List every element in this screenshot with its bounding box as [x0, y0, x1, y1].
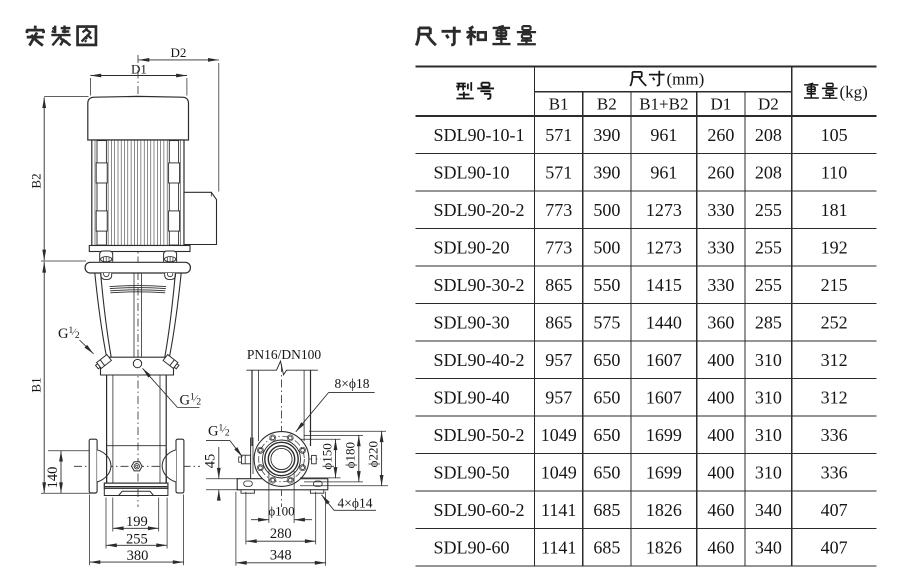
- svg-text:1699: 1699: [646, 425, 682, 445]
- svg-text:255: 255: [755, 237, 782, 257]
- svg-text:D1: D1: [710, 95, 731, 114]
- svg-text:B1: B1: [549, 95, 569, 114]
- svg-text:310: 310: [755, 387, 782, 407]
- svg-text:1049: 1049: [541, 425, 577, 445]
- svg-text:407: 407: [821, 538, 848, 558]
- svg-text:390: 390: [593, 125, 620, 145]
- svg-text:500: 500: [593, 200, 620, 220]
- svg-text:460: 460: [707, 538, 734, 558]
- svg-text:285: 285: [755, 312, 782, 332]
- svg-text:208: 208: [755, 125, 782, 145]
- svg-text:255: 255: [755, 275, 782, 295]
- svg-text:865: 865: [545, 275, 572, 295]
- svg-text:255: 255: [755, 200, 782, 220]
- svg-text:400: 400: [707, 387, 734, 407]
- svg-text:400: 400: [707, 350, 734, 370]
- svg-text:961: 961: [650, 125, 677, 145]
- svg-text:571: 571: [545, 125, 572, 145]
- svg-text:336: 336: [821, 462, 848, 482]
- svg-text:575: 575: [593, 312, 620, 332]
- svg-text:650: 650: [593, 387, 620, 407]
- svg-text:110: 110: [821, 162, 847, 182]
- svg-text:8×ϕ18: 8×ϕ18: [335, 376, 370, 391]
- svg-text:330: 330: [707, 275, 734, 295]
- svg-text:310: 310: [755, 425, 782, 445]
- svg-text:1440: 1440: [646, 312, 682, 332]
- svg-text:199: 199: [126, 514, 148, 530]
- svg-text:773: 773: [545, 237, 572, 257]
- svg-text:SDL90-30-2: SDL90-30-2: [434, 275, 525, 295]
- svg-text:SDL90-50-2: SDL90-50-2: [434, 425, 525, 445]
- svg-text:330: 330: [707, 237, 734, 257]
- svg-text:D2: D2: [758, 95, 779, 114]
- svg-text:ϕ220: ϕ220: [365, 441, 380, 467]
- svg-text:ϕ150: ϕ150: [319, 443, 334, 469]
- svg-text:340: 340: [755, 538, 782, 558]
- svg-text:4×ϕ14: 4×ϕ14: [338, 496, 373, 511]
- svg-text:1273: 1273: [646, 200, 682, 220]
- svg-text:773: 773: [545, 200, 572, 220]
- svg-text:192: 192: [821, 237, 848, 257]
- svg-text:571: 571: [545, 162, 572, 182]
- svg-text:336: 336: [821, 425, 848, 445]
- svg-text:SDL90-40-2: SDL90-40-2: [434, 350, 525, 370]
- svg-text:SDL90-10: SDL90-10: [434, 162, 510, 182]
- svg-text:340: 340: [755, 500, 782, 520]
- svg-text:105: 105: [821, 125, 848, 145]
- svg-text:685: 685: [593, 538, 620, 558]
- svg-text:1141: 1141: [541, 538, 576, 558]
- svg-text:252: 252: [821, 312, 848, 332]
- svg-text:1826: 1826: [646, 500, 682, 520]
- svg-text:407: 407: [821, 500, 848, 520]
- svg-text:360: 360: [707, 312, 734, 332]
- svg-text:SDL90-30: SDL90-30: [434, 312, 510, 332]
- svg-text:1415: 1415: [646, 275, 682, 295]
- svg-text:D2: D2: [171, 45, 187, 60]
- svg-text:SDL90-20-2: SDL90-20-2: [434, 200, 525, 220]
- svg-text:140: 140: [45, 467, 61, 489]
- svg-text:650: 650: [593, 462, 620, 482]
- svg-text:ϕ180: ϕ180: [343, 442, 358, 468]
- svg-text:181: 181: [821, 200, 848, 220]
- svg-text:208: 208: [755, 162, 782, 182]
- svg-text:SDL90-40: SDL90-40: [434, 387, 510, 407]
- svg-text:380: 380: [127, 548, 149, 564]
- svg-text:550: 550: [593, 275, 620, 295]
- svg-text:B1+B2: B1+B2: [639, 95, 688, 114]
- svg-text:865: 865: [545, 312, 572, 332]
- svg-text:B1: B1: [29, 377, 44, 392]
- svg-text:SDL90-20: SDL90-20: [434, 237, 510, 257]
- svg-text:45: 45: [203, 454, 219, 469]
- svg-text:B2: B2: [29, 173, 44, 188]
- svg-text:SDL90-10-1: SDL90-10-1: [434, 125, 525, 145]
- svg-text:400: 400: [707, 462, 734, 482]
- svg-text:1607: 1607: [646, 387, 682, 407]
- svg-text:SDL90-50: SDL90-50: [434, 462, 510, 482]
- svg-text:650: 650: [593, 425, 620, 445]
- svg-text:215: 215: [821, 275, 848, 295]
- svg-text:957: 957: [545, 387, 572, 407]
- svg-text:312: 312: [821, 387, 848, 407]
- svg-text:650: 650: [593, 350, 620, 370]
- svg-text:1273: 1273: [646, 237, 682, 257]
- svg-text:330: 330: [707, 200, 734, 220]
- svg-text:SDL90-60: SDL90-60: [434, 538, 510, 558]
- svg-text:390: 390: [593, 162, 620, 182]
- svg-text:280: 280: [270, 526, 292, 542]
- svg-text:400: 400: [707, 425, 734, 445]
- svg-text:685: 685: [593, 500, 620, 520]
- svg-text:310: 310: [755, 350, 782, 370]
- svg-text:1141: 1141: [541, 500, 576, 520]
- svg-text:SDL90-60-2: SDL90-60-2: [434, 500, 525, 520]
- svg-text:1699: 1699: [646, 462, 682, 482]
- svg-text:PN16/DN100: PN16/DN100: [247, 347, 322, 362]
- svg-text:1607: 1607: [646, 350, 682, 370]
- svg-text:1049: 1049: [541, 462, 577, 482]
- svg-text:1826: 1826: [646, 538, 682, 558]
- svg-text:255: 255: [126, 531, 148, 547]
- svg-text:348: 348: [270, 547, 292, 563]
- svg-text:260: 260: [707, 125, 734, 145]
- svg-text:500: 500: [593, 237, 620, 257]
- svg-text:260: 260: [707, 162, 734, 182]
- svg-text:B2: B2: [597, 95, 617, 114]
- svg-text:957: 957: [545, 350, 572, 370]
- svg-text:460: 460: [707, 500, 734, 520]
- svg-text:(mm): (mm): [667, 69, 705, 88]
- svg-text:310: 310: [755, 462, 782, 482]
- svg-text:(kg): (kg): [840, 82, 868, 101]
- svg-text:312: 312: [821, 350, 848, 370]
- svg-text:ϕ100: ϕ100: [268, 503, 294, 518]
- svg-text:961: 961: [650, 162, 677, 182]
- svg-text:D1: D1: [131, 61, 147, 76]
